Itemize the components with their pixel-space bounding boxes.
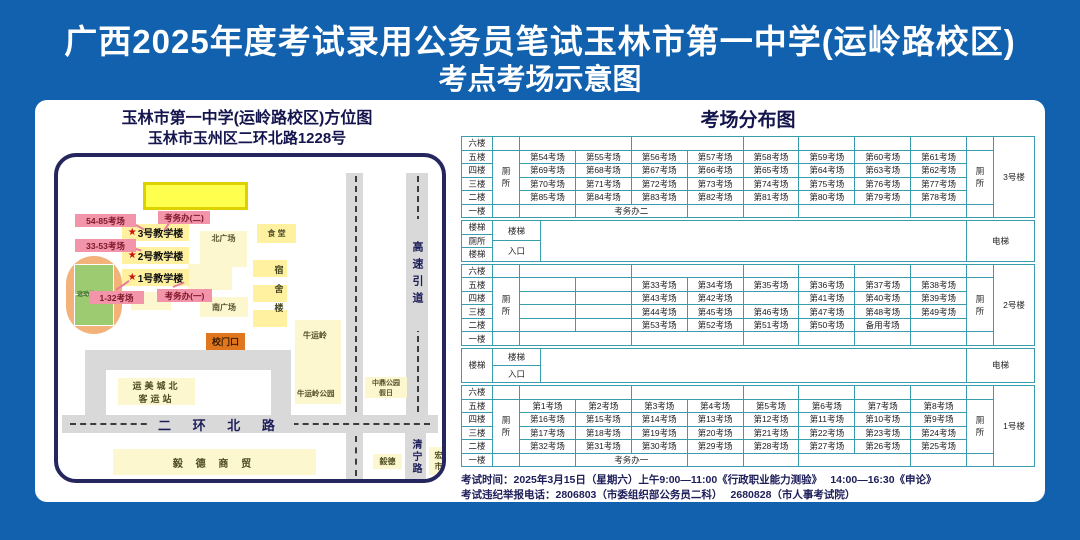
exam-room-cell: 第33考场 <box>632 278 687 291</box>
exam-room-cell: 第84考场 <box>576 191 631 204</box>
exam-room-cell: 第36考场 <box>799 278 854 291</box>
elevator-label: 电梯 <box>967 349 1034 382</box>
exam-room-cell: 第7考场 <box>855 400 910 413</box>
erhuan-north-road: 二 环 北 路 <box>62 415 438 433</box>
stairs-floor-label: 楼梯 <box>462 349 492 382</box>
floor-label: 四楼 <box>462 292 492 305</box>
exam-room-cell: 第34考场 <box>688 278 743 291</box>
toilet-col-top <box>967 265 993 278</box>
school-gate-label: 校门口 <box>212 335 239 348</box>
toilet-col-top <box>967 137 993 150</box>
campus-map: 高速引道 清宁路 二 环 北 路 运动场 北广场 食 堂 <box>54 153 446 483</box>
highway-ramp-label: 高速引道 <box>406 219 428 331</box>
empty-cell <box>744 137 799 150</box>
floor-label: 二楼 <box>462 319 492 332</box>
map-header: 玉林市第一中学(运岭路校区)方位图 玉林市玉州区二环北路1228号 <box>35 109 459 148</box>
empty-cell <box>632 386 743 399</box>
empty-cell <box>520 137 631 150</box>
stairs-empty-area <box>541 221 966 261</box>
poster-title-line2: 考点考场示意图 <box>438 62 641 98</box>
stair-box: 楼梯 <box>493 349 540 365</box>
toilet-char: 所 <box>976 426 985 438</box>
exam-room-cell: 第32考场 <box>520 440 575 453</box>
toilet-col-top <box>493 386 519 399</box>
hongjin-line2: 市场 <box>435 461 447 472</box>
toilet-char: 所 <box>976 177 985 189</box>
empty-cell <box>520 205 575 218</box>
empty-cell <box>576 292 631 305</box>
report-phone-line: 考试违纪举报电话：2806803（市委组织部公务员二科） 2680828（市人事… <box>461 488 1035 503</box>
distribution-blocks: 六楼五楼第54考场第55考场第56考场第57考场第58考场第59考场第60考场第… <box>461 136 1035 467</box>
empty-cell <box>520 332 631 345</box>
exam-room-cell: 第53考场 <box>632 319 687 332</box>
toilet-label-right: 厕所 <box>967 151 993 204</box>
stairs-floor-label: 楼梯 <box>462 248 492 261</box>
exam-room-cell: 第3考场 <box>632 400 687 413</box>
south-plaza-label: 南广场 <box>212 302 236 313</box>
exam-room-cell: 第40考场 <box>855 292 910 305</box>
yide-small: 毅德 <box>373 454 402 469</box>
entrance-box: 入口 <box>493 241 540 260</box>
niuyunling-label: 牛运岭 <box>303 330 327 341</box>
exam-office-2-badge: 考务办(二) <box>158 211 210 224</box>
empty-cell <box>911 454 966 467</box>
exam-room-cell: 第74考场 <box>744 178 799 191</box>
exam-room-cell: 第51考场 <box>744 319 799 332</box>
building-2-text: 2号教学楼 <box>138 248 184 263</box>
exam-room-cell: 第64考场 <box>799 164 854 177</box>
empty-cell <box>520 454 575 467</box>
exam-room-cell: 第62考场 <box>911 164 966 177</box>
exam-room-cell: 第24考场 <box>911 427 966 440</box>
floor-label: 四楼 <box>462 413 492 426</box>
exam-room-cell: 第19考场 <box>632 427 687 440</box>
road-dash <box>355 176 357 412</box>
floor-label: 三楼 <box>462 178 492 191</box>
floor-label: 六楼 <box>462 386 492 399</box>
empty-cell <box>744 265 799 278</box>
exam-room-cell: 第39考场 <box>911 292 966 305</box>
toilet-label-right: 厕所 <box>967 278 993 331</box>
exam-room-cell: 第25考场 <box>911 440 966 453</box>
exam-room-cell: 第47考场 <box>799 305 854 318</box>
toilet-col-top <box>493 265 519 278</box>
canteen-label: 食 堂 <box>267 228 285 239</box>
exam-room-cell: 第15考场 <box>576 413 631 426</box>
dorm-label: 宿舍楼 <box>272 258 286 328</box>
entrance-box: 入口 <box>493 366 540 382</box>
exam-time-line: 考试时间：2025年3月15日（星期六）上午9:00—11:00《行政职业能力测… <box>461 473 1035 488</box>
toilet-col-bottom <box>967 205 993 218</box>
empty-cell <box>744 332 799 345</box>
exam-room-cell: 第56考场 <box>632 151 687 164</box>
floor-label: 二楼 <box>462 191 492 204</box>
exam-room-cell: 第16考场 <box>520 413 575 426</box>
exam-room-cell: 第80考场 <box>799 191 854 204</box>
empty-cell <box>520 319 575 332</box>
empty-cell <box>799 205 910 218</box>
exam-room-cell: 第8考场 <box>911 400 966 413</box>
bus-station: 运美城北 客运站 <box>118 378 195 405</box>
toilet-label-left: 厕所 <box>493 151 519 204</box>
exam-room-cell: 第81考场 <box>744 191 799 204</box>
floor-label: 五楼 <box>462 278 492 291</box>
exam-room-cell: 第65考场 <box>744 164 799 177</box>
exam-room-cell: 第9考场 <box>911 413 966 426</box>
canteen: 食 堂 <box>257 224 296 243</box>
exam-room-cell: 第22考场 <box>799 427 854 440</box>
exam-room-cell: 第58考场 <box>744 151 799 164</box>
toilet-char: 所 <box>502 426 511 438</box>
empty-cell <box>799 386 854 399</box>
exam-room-cell: 第46考场 <box>744 305 799 318</box>
exam-room-cell: 第71考场 <box>576 178 631 191</box>
exam-room-cell: 第69考场 <box>520 164 575 177</box>
exam-room-cell: 第38考场 <box>911 278 966 291</box>
zhongding-line1: 中鼎公园 <box>372 378 400 388</box>
exam-room-cell: 第1考场 <box>520 400 575 413</box>
exam-room-cell: 第60考场 <box>855 151 910 164</box>
building-3-text: 3号教学楼 <box>138 225 184 240</box>
floor-label: 六楼 <box>462 137 492 150</box>
vertical-road-1 <box>346 173 363 415</box>
toilet-col-bottom <box>493 205 519 218</box>
yide-trade: 毅 德 商 贸 <box>113 449 316 475</box>
niuyunling-park-label: 牛运岭公园 <box>297 388 335 399</box>
stairs-block: 楼梯楼梯入口电梯 <box>461 348 1035 383</box>
exam-room-cell: 第63考场 <box>855 164 910 177</box>
toilet-char: 所 <box>502 305 511 317</box>
empty-cell <box>799 454 910 467</box>
floor-label: 五楼 <box>462 151 492 164</box>
floor-label: 三楼 <box>462 305 492 318</box>
stairs-floor-label: 厕所 <box>462 235 492 248</box>
exam-room-cell: 第67考场 <box>632 164 687 177</box>
exam-room-cell: 第50考场 <box>799 319 854 332</box>
empty-cell <box>688 205 743 218</box>
empty-cell <box>799 332 854 345</box>
empty-cell <box>911 386 966 399</box>
vertical-road-1-lower <box>346 433 363 479</box>
zhongding-line2: 假日 <box>379 388 393 398</box>
exam-room-cell: 第12考场 <box>744 413 799 426</box>
exam-room-cell: 第27考场 <box>799 440 854 453</box>
yide-trade-label: 毅 德 商 贸 <box>173 455 256 470</box>
toilet-col-bottom <box>967 332 993 345</box>
toilet-label-right: 厕所 <box>967 400 993 453</box>
exam-room-cell: 第14考场 <box>632 413 687 426</box>
empty-cell <box>520 265 631 278</box>
empty-cell <box>632 332 743 345</box>
empty-cell <box>911 205 966 218</box>
toilet-char: 厕 <box>976 414 985 426</box>
road-dash <box>355 436 357 476</box>
exam-room-cell: 第76考场 <box>855 178 910 191</box>
empty-cell <box>576 319 631 332</box>
floor-label: 四楼 <box>462 164 492 177</box>
map-header-line2: 玉林市玉州区二环北路1228号 <box>35 129 459 148</box>
building-name-label: 3号楼 <box>994 137 1034 217</box>
exam-room-cell: 第44考场 <box>632 305 687 318</box>
empty-cell <box>688 454 743 467</box>
empty-cell <box>520 292 575 305</box>
floor-label: 一楼 <box>462 205 492 218</box>
exam-room-cell: 第59考场 <box>799 151 854 164</box>
empty-cell <box>855 265 910 278</box>
hongjin-market: 宏进 市场 <box>429 447 446 475</box>
exam-room-cell: 第49考场 <box>911 305 966 318</box>
bus-station-line2: 客运站 <box>138 392 174 405</box>
exam-room-cell: 第5考场 <box>744 400 799 413</box>
exam-room-cell: 第30考场 <box>632 440 687 453</box>
footer-info: 考试时间：2025年3月15日（星期六）上午9:00—11:00《行政职业能力测… <box>461 473 1035 503</box>
toilet-col-top <box>493 137 519 150</box>
poster: 广西2025年度考试录用公务员笔试玉林市第一中学(运岭路校区) 考点考场示意图 … <box>0 0 1080 502</box>
exam-room-cell: 第78考场 <box>911 191 966 204</box>
empty-cell <box>911 319 966 332</box>
exam-room-cell: 第6考场 <box>799 400 854 413</box>
exam-room-cell: 第77考场 <box>911 178 966 191</box>
toilet-col-bottom <box>493 332 519 345</box>
floor-label: 一楼 <box>462 332 492 345</box>
exam-room-cell: 第45考场 <box>688 305 743 318</box>
exam-room-cell: 第75考场 <box>799 178 854 191</box>
exam-office-1-badge: 考务办(一) <box>157 289 212 302</box>
stair-box: 楼梯 <box>493 221 540 240</box>
exam-room-cell: 第28考场 <box>744 440 799 453</box>
floor-label: 三楼 <box>462 427 492 440</box>
empty-cell <box>520 305 575 318</box>
exam-room-cell: 第54考场 <box>520 151 575 164</box>
exam-room-cell: 备用考场 <box>855 319 910 332</box>
niuyunling-area: 牛运岭 牛运岭公园 <box>295 320 341 404</box>
poster-title: 广西2025年度考试录用公务员笔试玉林市第一中学(运岭路校区) 考点考场示意图 <box>0 0 1080 100</box>
exam-room-cell: 第13考场 <box>688 413 743 426</box>
empty-cell <box>855 332 910 345</box>
empty-cell <box>632 137 743 150</box>
hongjin-line1: 宏进 <box>435 450 447 461</box>
north-plaza: 北广场 <box>200 231 247 267</box>
poster-title-line1: 广西2025年度考试录用公务员笔试玉林市第一中学(运岭路校区) <box>64 22 1015 62</box>
empty-cell <box>744 386 799 399</box>
rooms-1-32-badge: 1-32考场 <box>89 291 144 304</box>
stairs-floor-label: 楼梯 <box>462 221 492 234</box>
erhuan-road-label: 二 环 北 路 <box>148 415 294 433</box>
empty-cell <box>744 205 799 218</box>
building-name-label: 1号楼 <box>994 386 1034 466</box>
rooms-33-53-badge: 33-53考场 <box>75 239 136 252</box>
exam-room-cell: 第73考场 <box>688 178 743 191</box>
toilet-char: 厕 <box>502 293 511 305</box>
exam-room-cell: 第82考场 <box>688 191 743 204</box>
exam-room-cell: 第35考场 <box>744 278 799 291</box>
empty-cell <box>911 332 966 345</box>
office-cell: 考务办一 <box>576 454 687 467</box>
exam-room-cell: 第48考场 <box>855 305 910 318</box>
empty-cell <box>576 305 631 318</box>
empty-cell <box>911 265 966 278</box>
map-section: 玉林市第一中学(运岭路校区)方位图 玉林市玉州区二环北路1228号 高速引道 清… <box>35 100 459 502</box>
exam-room-cell: 第11考场 <box>799 413 854 426</box>
floor-label: 六楼 <box>462 265 492 278</box>
exam-room-cell: 第85考场 <box>520 191 575 204</box>
empty-cell <box>855 386 910 399</box>
building-block-2号楼: 六楼五楼第33考场第34考场第35考场第36考场第37考场第38考场四楼第43考… <box>461 264 1035 346</box>
exam-room-cell: 第4考场 <box>688 400 743 413</box>
exam-room-cell: 第55考场 <box>576 151 631 164</box>
qingning-road-label: 清宁路 <box>405 435 426 479</box>
bus-station-line1: 运美城北 <box>132 379 180 392</box>
exam-room-cell: 第20考场 <box>688 427 743 440</box>
campus-road-right-leg <box>271 350 291 416</box>
stairs-empty-area <box>541 349 966 382</box>
empty-cell <box>744 292 799 305</box>
exam-room-cell: 第10考场 <box>855 413 910 426</box>
floor-label: 五楼 <box>462 400 492 413</box>
toilet-char: 厕 <box>502 165 511 177</box>
toilet-col-bottom <box>967 454 993 467</box>
exam-room-cell: 第23考场 <box>855 427 910 440</box>
toilet-char: 厕 <box>502 414 511 426</box>
exam-room-cell: 第61考场 <box>911 151 966 164</box>
toilet-label-left: 厕所 <box>493 400 519 453</box>
elevator-label: 电梯 <box>967 221 1034 261</box>
empty-cell <box>799 137 854 150</box>
exam-room-cell: 第29考场 <box>688 440 743 453</box>
exam-room-cell: 第42考场 <box>688 292 743 305</box>
exam-room-cell: 第70考场 <box>520 178 575 191</box>
exam-room-cell: 第57考场 <box>688 151 743 164</box>
toilet-char: 所 <box>976 305 985 317</box>
exam-room-cell: 第26考场 <box>855 440 910 453</box>
exam-room-cell: 第79考场 <box>855 191 910 204</box>
exam-room-cell: 第2考场 <box>576 400 631 413</box>
exam-room-cell: 第68考场 <box>576 164 631 177</box>
exam-room-cell: 第17考场 <box>520 427 575 440</box>
office-cell: 考务办二 <box>576 205 687 218</box>
school-gate: 校门口 <box>206 333 245 350</box>
floor-label: 一楼 <box>462 454 492 467</box>
toilet-char: 所 <box>502 177 511 189</box>
building-block-3号楼: 六楼五楼第54考场第55考场第56考场第57考场第58考场第59考场第60考场第… <box>461 136 1035 218</box>
top-building <box>143 182 248 210</box>
exam-room-cell: 第31考场 <box>576 440 631 453</box>
building-name-label: 2号楼 <box>994 265 1034 345</box>
exam-room-cell: 第37考场 <box>855 278 910 291</box>
empty-cell <box>744 454 799 467</box>
empty-cell <box>520 386 631 399</box>
empty-cell <box>632 265 743 278</box>
empty-cell <box>799 265 854 278</box>
zhongding-park: 中鼎公园 假日 <box>365 377 407 398</box>
stairs-block: 楼梯厕所楼梯楼梯入口电梯 <box>461 220 1035 262</box>
map-header-line1: 玉林市第一中学(运岭路校区)方位图 <box>35 109 459 129</box>
side-building <box>188 264 232 290</box>
toilet-col-top <box>967 386 993 399</box>
distribution-section: 考场分布图 六楼五楼第54考场第55考场第56考场第57考场第58考场第59考场… <box>459 100 1045 502</box>
empty-cell <box>855 137 910 150</box>
empty-cell <box>576 278 631 291</box>
rooms-54-85-badge: 54-85考场 <box>75 214 136 227</box>
distribution-title: 考场分布图 <box>461 105 1035 132</box>
building-block-1号楼: 六楼五楼第1考场第2考场第3考场第4考场第5考场第6考场第7考场第8考场四楼第1… <box>461 385 1035 467</box>
exam-room-cell: 第83考场 <box>632 191 687 204</box>
campus-road-bar <box>85 350 291 370</box>
exam-room-cell: 第21考场 <box>744 427 799 440</box>
empty-cell <box>911 137 966 150</box>
exam-room-cell: 第66考场 <box>688 164 743 177</box>
exam-room-cell: 第72考场 <box>632 178 687 191</box>
empty-cell <box>520 278 575 291</box>
building-1-text: 1号教学楼 <box>138 270 184 285</box>
exam-room-cell: 第43考场 <box>632 292 687 305</box>
exam-room-cell: 第18考场 <box>576 427 631 440</box>
exam-room-cell: 第52考场 <box>688 319 743 332</box>
exam-room-cell: 第41考场 <box>799 292 854 305</box>
toilet-label-left: 厕所 <box>493 278 519 331</box>
toilet-char: 厕 <box>976 165 985 177</box>
floor-label: 二楼 <box>462 440 492 453</box>
north-plaza-label: 北广场 <box>212 233 236 244</box>
toilet-char: 厕 <box>976 293 985 305</box>
toilet-col-bottom <box>493 454 519 467</box>
yide-small-label: 毅德 <box>380 456 396 467</box>
star-icon: ★ <box>128 227 137 238</box>
content-panel: 玉林市第一中学(运岭路校区)方位图 玉林市玉州区二环北路1228号 高速引道 清… <box>35 100 1045 502</box>
